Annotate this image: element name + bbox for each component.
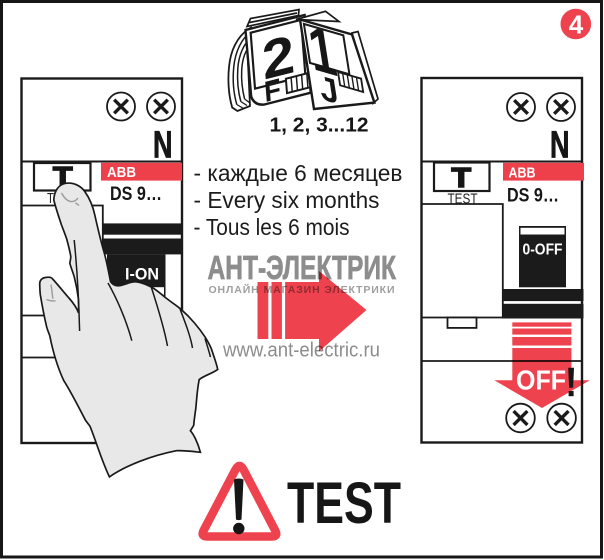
svg-text:ABB: ABB <box>509 165 536 182</box>
svg-text:0-OFF: 0-OFF <box>523 242 563 259</box>
svg-text:F: F <box>263 73 282 109</box>
svg-text:www.ant-electric.ru: www.ant-electric.ru <box>222 340 380 362</box>
svg-text:N: N <box>550 125 570 167</box>
svg-text:1, 2, 3...12: 1, 2, 3...12 <box>270 114 369 137</box>
svg-text:- каждые 6 месяцев: - каждые 6 месяцев <box>194 160 403 186</box>
svg-text:TEST: TEST <box>448 192 478 208</box>
svg-text:DS 9…: DS 9… <box>110 183 162 205</box>
svg-text:ABB: ABB <box>107 164 136 181</box>
svg-text:OFF: OFF <box>516 365 566 396</box>
svg-text:T: T <box>452 162 472 193</box>
svg-text:- Every six months: - Every six months <box>194 187 380 213</box>
svg-text:N: N <box>153 125 173 167</box>
svg-text:АНТ-ЭЛЕКТРИК: АНТ-ЭЛЕКТРИК <box>208 250 397 287</box>
svg-text:- Tous les 6 mois: - Tous les 6 mois <box>194 214 350 240</box>
svg-text:4: 4 <box>569 10 584 40</box>
svg-text:I-ON: I-ON <box>125 266 159 284</box>
svg-text:TEST: TEST <box>287 471 401 536</box>
svg-text:DS 9…: DS 9… <box>507 185 559 207</box>
